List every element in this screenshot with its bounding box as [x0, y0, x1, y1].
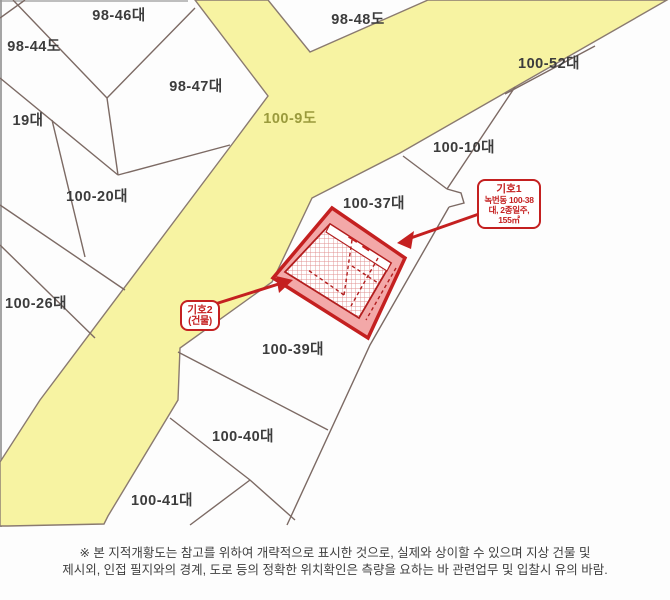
parcel-label-98-47: 98-47대 — [169, 78, 222, 95]
parcel-label-98-48: 98-48도 — [331, 12, 384, 28]
parcel-label-100-41: 100-41대 — [131, 492, 193, 509]
parcel-label-100-26: 100-26대 — [5, 295, 67, 312]
parcel-label-100-20: 100-20대 — [66, 188, 128, 205]
parcel-label-100-10: 100-10대 — [433, 139, 495, 156]
marker2-box: 기호2 (건물) — [180, 300, 220, 331]
parcel-label-98-44: 98-44도 — [7, 39, 60, 55]
marker2-line1: (건물) — [182, 316, 218, 327]
marker1-arrowhead-icon — [397, 231, 414, 249]
disclaimer-line2: 제시외, 인접 필지와의 경계, 도로 등의 정확한 위치확인은 측량을 요하는… — [0, 562, 670, 579]
parcel-label-100-40: 100-40대 — [212, 428, 274, 445]
map-svg: 98-46대 98-44도 98-48도 100-52대 98-47대 19대 … — [0, 0, 670, 540]
parcel-label-19: 19대 — [13, 112, 44, 129]
road-label-100-9: 100-9도 — [263, 111, 316, 127]
disclaimer-text: ※ 본 지적개황도는 참고를 위하여 개략적으로 표시한 것으로, 실제와 상이… — [0, 540, 670, 600]
parcel-label-100-37: 100-37대 — [343, 195, 405, 212]
marker1-line1: 녹번동 100-38 — [479, 195, 539, 205]
disclaimer-line1: ※ 본 지적개황도는 참고를 위하여 개략적으로 표시한 것으로, 실제와 상이… — [0, 545, 670, 562]
marker1-box: 기호1 녹번동 100-38 대, 2종일주, 155㎡ — [477, 179, 541, 229]
parcel-label-100-39: 100-39대 — [262, 341, 324, 358]
cadastral-map-page: 98-46대 98-44도 98-48도 100-52대 98-47대 19대 … — [0, 0, 670, 600]
parcel-label-98-46: 98-46대 — [92, 7, 145, 24]
parcel-label-100-52: 100-52대 — [518, 55, 580, 72]
marker1-line2: 대, 2종일주, — [479, 205, 539, 215]
map-area: 98-46대 98-44도 98-48도 100-52대 98-47대 19대 … — [0, 0, 670, 540]
marker2-title: 기호2 — [182, 304, 218, 316]
marker1-line3: 155㎡ — [479, 215, 539, 225]
marker1-title: 기호1 — [479, 183, 539, 195]
